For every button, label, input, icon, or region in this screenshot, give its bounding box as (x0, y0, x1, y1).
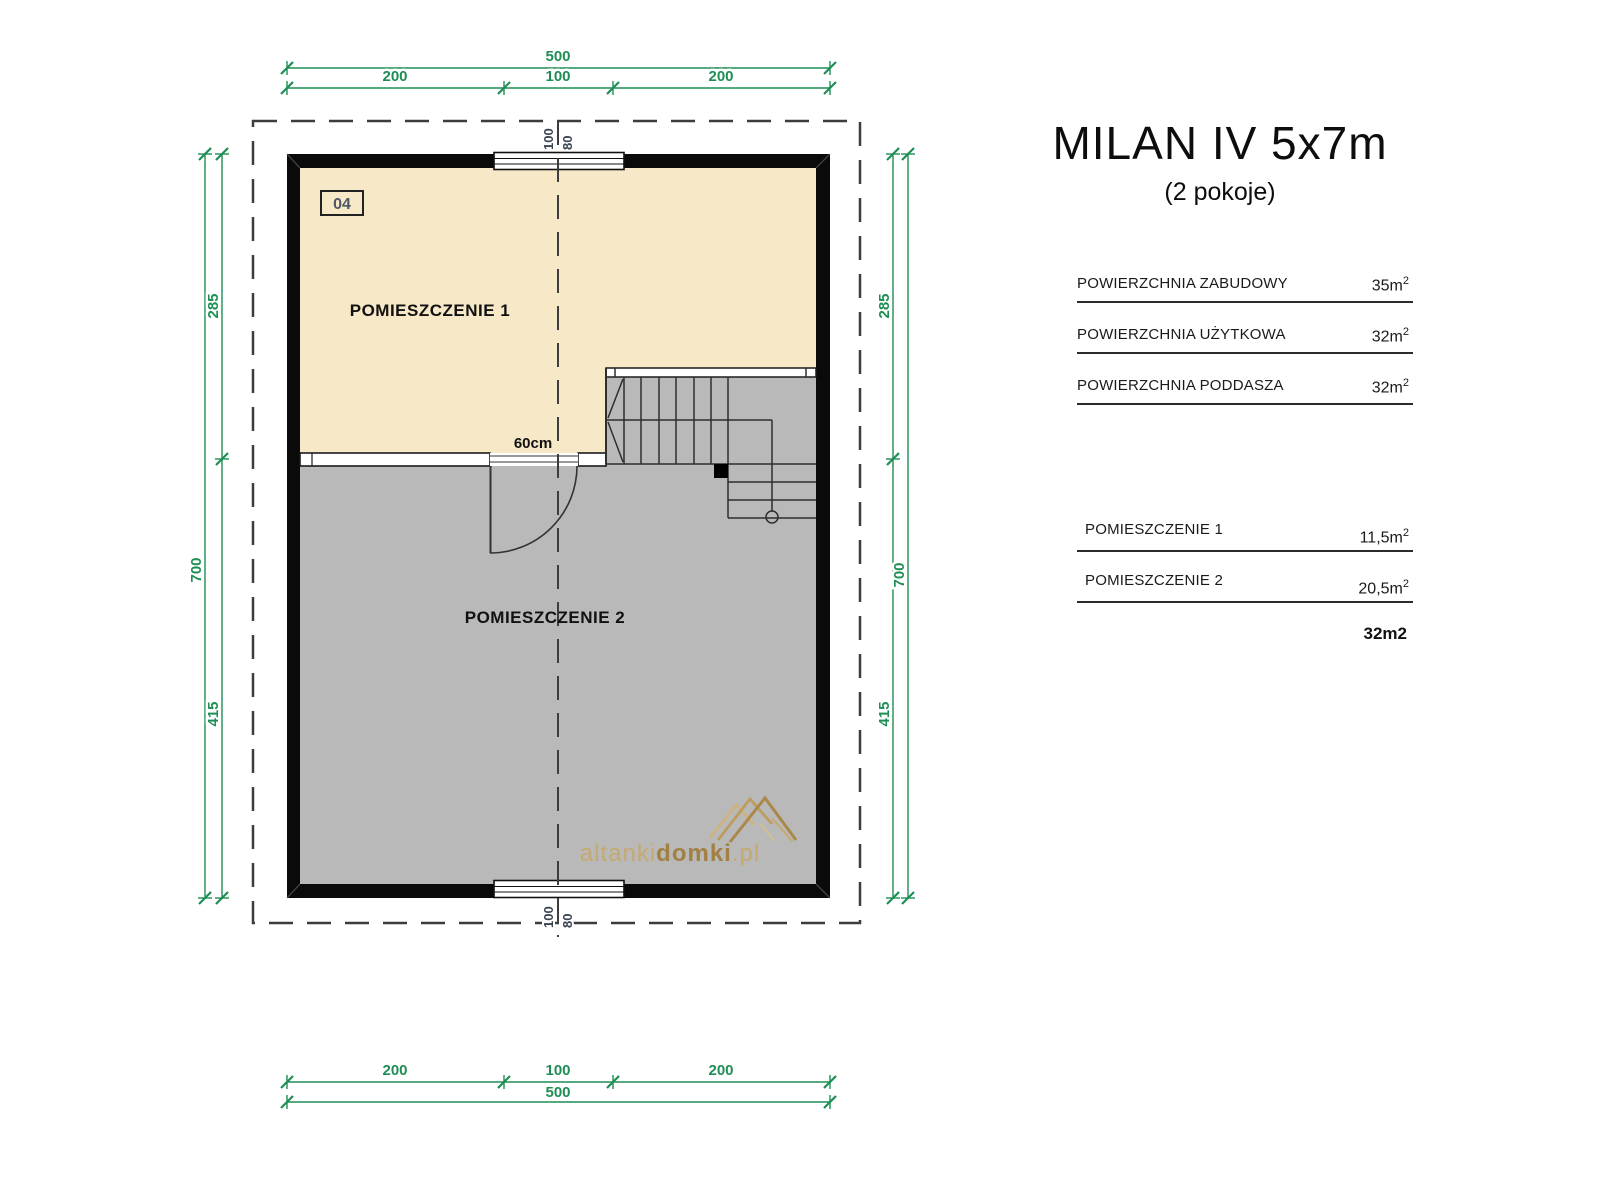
dim-label-right-lower: 415 (876, 701, 893, 726)
dim-label-top-right: 200 (708, 68, 733, 85)
summary-table: POWIERZCHNIA ZABUDOWY 35m2 POWIERZCHNIA … (1077, 252, 1413, 405)
window-bottom-height-label: 80 (560, 914, 575, 928)
dim-label-left-upper: 285 (205, 293, 222, 318)
plan-title: MILAN IV 5x7m (1020, 116, 1420, 170)
dim-label-bottom-left: 200 (382, 1062, 407, 1079)
row-label: POWIERZCHNIA PODDASZA (1077, 377, 1284, 403)
dim-label-bottom-total: 500 (545, 1084, 570, 1101)
room1-label: POMIESZCZENIE 1 (350, 301, 511, 320)
dim-right-segments (886, 148, 900, 904)
dim-label-right-total: 700 (891, 562, 908, 587)
page: 60cm (0, 0, 1600, 1184)
table-row: POMIESZCZENIE 1 11,5m2 (1077, 501, 1413, 552)
row-value: 32m2 (1372, 377, 1413, 403)
row-value: 11,5m2 (1360, 527, 1413, 550)
stair-post (714, 464, 728, 478)
window-bottom-width-label: 100 (541, 906, 556, 928)
dim-label-left-total: 700 (188, 557, 205, 582)
dim-left-segments (215, 148, 229, 904)
dim-label-top-total: 500 (545, 48, 570, 65)
door-opening (490, 453, 578, 466)
door-width-label: 60cm (514, 435, 552, 452)
dim-label-bottom-center: 100 (545, 1062, 570, 1079)
watermark-text: altankidomki.pl (580, 840, 760, 867)
row-label: POMIESZCZENIE 1 (1077, 521, 1223, 550)
row-label: POWIERZCHNIA UŻYTKOWA (1077, 326, 1286, 352)
dim-right-total (901, 148, 915, 904)
row-value: 35m2 (1372, 275, 1413, 301)
row-value: 20,5m2 (1358, 578, 1413, 601)
dim-label-left-lower: 415 (205, 701, 222, 726)
dim-left-total (198, 148, 212, 904)
window-top-height-label: 80 (560, 136, 575, 150)
info-panel: MILAN IV 5x7m (2 pokoje) POWIERZCHNIA ZA… (1020, 0, 1420, 1184)
dim-label-top-left: 200 (382, 68, 407, 85)
unit-badge: 04 (321, 191, 363, 215)
dim-label-right-upper: 285 (876, 293, 893, 318)
floor-plan: 60cm (0, 0, 1000, 1184)
table-row: POWIERZCHNIA ZABUDOWY 35m2 (1077, 252, 1413, 303)
stair-railing-wall (606, 368, 816, 377)
table-row: POMIESZCZENIE 2 20,5m2 (1077, 552, 1413, 603)
unit-badge-label: 04 (333, 196, 351, 213)
row-value: 32m2 (1372, 326, 1413, 352)
row-label: POMIESZCZENIE 2 (1077, 572, 1223, 601)
dim-label-top-center: 100 (545, 68, 570, 85)
window-top-width-label: 100 (541, 128, 556, 150)
rooms-table: POMIESZCZENIE 1 11,5m2 POMIESZCZENIE 2 2… (1077, 501, 1413, 644)
dim-label-bottom-right: 200 (708, 1062, 733, 1079)
row-label: POWIERZCHNIA ZABUDOWY (1077, 275, 1288, 301)
plan-subtitle: (2 pokoje) (1020, 178, 1420, 207)
room2-label: POMIESZCZENIE 2 (465, 608, 626, 627)
rooms-total: 32m2 (1077, 624, 1413, 644)
table-row: POWIERZCHNIA PODDASZA 32m2 (1077, 354, 1413, 405)
table-row: POWIERZCHNIA UŻYTKOWA 32m2 (1077, 303, 1413, 354)
